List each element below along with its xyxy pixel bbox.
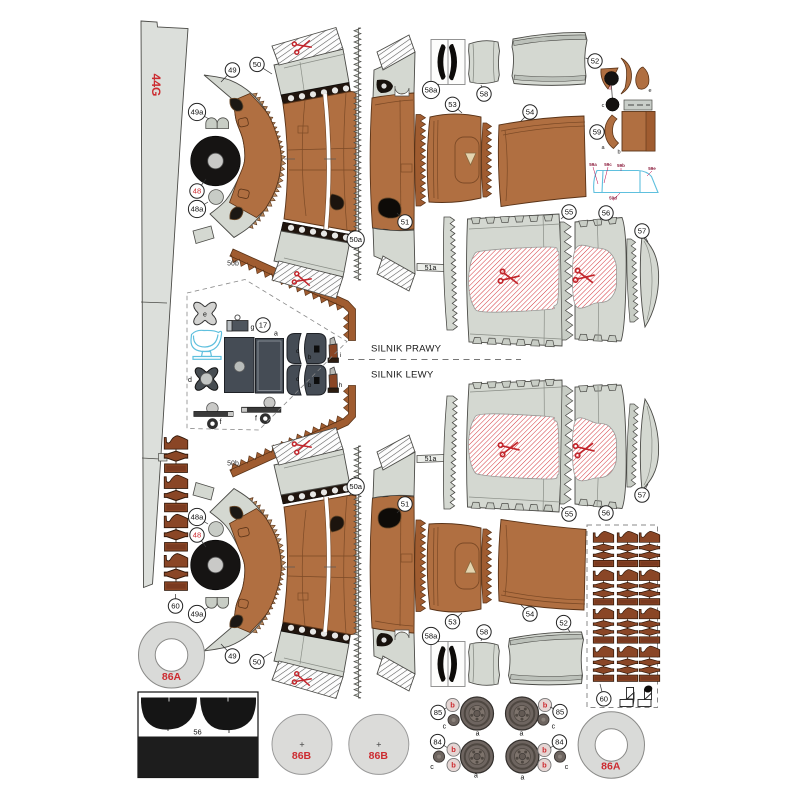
svg-text:86A: 86A: [601, 761, 621, 773]
svg-text:86B: 86B: [369, 750, 389, 762]
svg-text:e: e: [648, 88, 651, 94]
svg-text:86A: 86A: [162, 671, 182, 683]
svg-text:58a: 58a: [425, 632, 438, 641]
svg-text:59c: 59c: [604, 162, 612, 167]
svg-text:58a: 58a: [425, 86, 438, 95]
svg-text:49: 49: [228, 66, 236, 75]
svg-text:a: a: [274, 331, 278, 338]
svg-text:e: e: [203, 312, 207, 319]
svg-text:85: 85: [556, 707, 564, 716]
svg-text:52: 52: [559, 618, 567, 627]
svg-text:84: 84: [555, 738, 563, 747]
svg-text:56: 56: [602, 509, 610, 518]
svg-text:85: 85: [434, 708, 442, 717]
svg-text:49a: 49a: [191, 108, 204, 117]
svg-text:17: 17: [259, 321, 267, 330]
svg-text:48: 48: [193, 187, 201, 196]
svg-text:57: 57: [638, 491, 646, 500]
svg-text:i: i: [340, 352, 341, 359]
svg-text:52: 52: [591, 57, 599, 66]
svg-text:53: 53: [448, 617, 456, 626]
svg-text:g: g: [251, 325, 255, 332]
svg-text:84: 84: [433, 737, 441, 746]
svg-text:58: 58: [480, 628, 488, 637]
svg-text:56: 56: [193, 728, 201, 737]
svg-text:b: b: [308, 354, 312, 361]
svg-text:b: b: [308, 382, 312, 389]
svg-text:49: 49: [228, 652, 236, 661]
svg-text:50a: 50a: [349, 235, 362, 244]
svg-text:58: 58: [480, 90, 488, 99]
svg-text:54: 54: [526, 610, 534, 619]
svg-text:59: 59: [593, 128, 601, 137]
svg-text:b: b: [450, 701, 455, 710]
svg-text:b: b: [542, 761, 547, 770]
svg-text:55: 55: [565, 208, 573, 217]
svg-text:a: a: [519, 731, 523, 738]
svg-text:49a: 49a: [191, 610, 204, 619]
svg-text:SILNIK LEWY: SILNIK LEWY: [371, 370, 434, 381]
svg-text:b: b: [451, 745, 456, 754]
svg-text:86B: 86B: [292, 750, 312, 762]
svg-text:59d: 59d: [609, 196, 617, 201]
svg-text:55: 55: [565, 510, 573, 519]
svg-text:59a: 59a: [589, 162, 597, 167]
svg-text:53: 53: [448, 100, 456, 109]
svg-text:59b: 59b: [617, 163, 625, 168]
svg-text:c: c: [430, 764, 434, 771]
svg-text:c: c: [565, 764, 569, 771]
svg-text:50: 50: [253, 60, 261, 69]
svg-text:c: c: [443, 724, 447, 731]
svg-text:57: 57: [638, 227, 646, 236]
svg-text:56: 56: [602, 209, 610, 218]
svg-text:c: c: [552, 724, 556, 731]
svg-text:59e: 59e: [648, 166, 656, 171]
svg-text:a: a: [476, 731, 480, 738]
svg-text:50b: 50b: [227, 461, 239, 468]
svg-text:b: b: [617, 150, 620, 156]
svg-text:b: b: [542, 746, 547, 755]
svg-text:h: h: [339, 382, 343, 389]
svg-text:c: c: [602, 103, 605, 109]
svg-text:51a: 51a: [425, 456, 437, 463]
svg-text:SILNIK PRAWY: SILNIK PRAWY: [371, 344, 442, 355]
svg-text:51: 51: [401, 500, 409, 509]
svg-text:48a: 48a: [191, 205, 204, 214]
svg-text:f: f: [220, 419, 222, 426]
svg-text:60: 60: [600, 695, 608, 704]
svg-text:d: d: [188, 377, 192, 384]
svg-text:a: a: [520, 775, 524, 782]
svg-text:a: a: [474, 773, 478, 780]
svg-text:48a: 48a: [191, 513, 204, 522]
svg-text:60: 60: [171, 602, 179, 611]
svg-text:44G: 44G: [149, 74, 163, 97]
svg-text:51: 51: [401, 218, 409, 227]
svg-text:50b: 50b: [227, 261, 239, 268]
svg-text:b: b: [451, 761, 456, 770]
svg-text:f: f: [255, 416, 257, 423]
svg-text:b: b: [543, 701, 548, 710]
svg-text:48: 48: [193, 531, 201, 540]
svg-text:d: d: [608, 86, 611, 92]
svg-text:51a: 51a: [425, 265, 437, 272]
svg-text:54: 54: [526, 108, 534, 117]
svg-text:50a: 50a: [349, 482, 362, 491]
svg-text:50: 50: [253, 657, 261, 666]
